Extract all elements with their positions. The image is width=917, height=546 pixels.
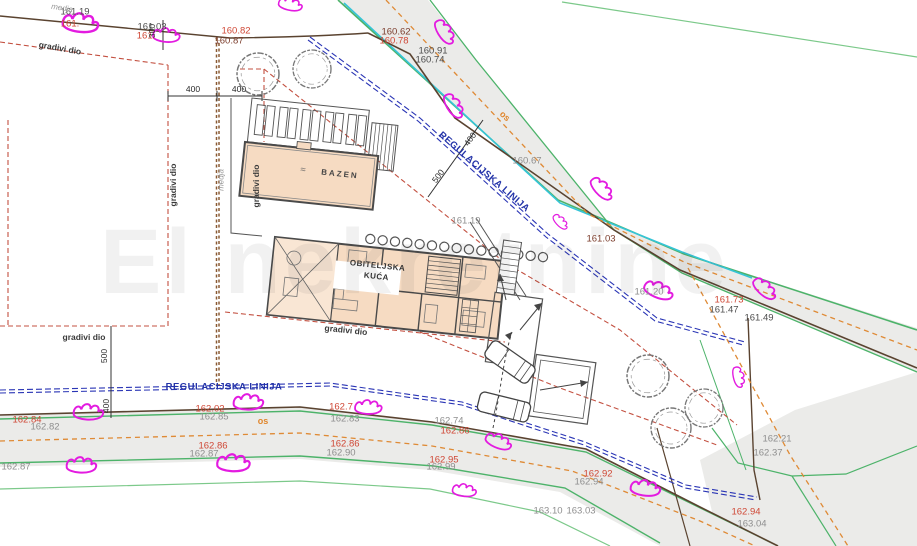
elevation-label: 162.87 <box>189 449 218 460</box>
elevation-label: 161. <box>61 19 80 30</box>
tree <box>627 355 669 397</box>
elevation-label: 162.85 <box>199 412 228 423</box>
buildable-area-label: gradivi dio <box>63 332 106 342</box>
elevation-label: 160.87 <box>214 36 243 47</box>
exterior-stairs <box>496 240 521 295</box>
site-plan-canvas: El nekretnine <box>0 0 917 546</box>
elevation-label: 163.03 <box>566 506 595 517</box>
regulation-line-label: REGULACIJSKA LINIJA <box>166 382 283 393</box>
dimension-label: 400 <box>101 399 111 413</box>
dimension-label: 400 <box>186 84 200 94</box>
elevation-label: 163.10 <box>533 506 562 517</box>
elevation-label: 161.49 <box>744 313 773 324</box>
elevation-label: 162.7 <box>329 402 353 413</box>
elevation-label: 161.20 <box>634 287 663 298</box>
zigzag-boundary-line <box>217 38 220 386</box>
elevation-label: 160.78 <box>379 36 408 47</box>
tree <box>293 50 331 88</box>
elevation-label: 162.94 <box>731 507 760 518</box>
elevation-label: 162.87 <box>1 462 30 473</box>
parking-pad <box>528 354 596 424</box>
elevation-label: 162.90 <box>326 448 355 459</box>
dimension-label: 400 <box>232 84 246 94</box>
elevation-label: 161.19 <box>451 216 480 227</box>
elevation-label: 163.04 <box>737 519 766 530</box>
elevation-label: 161.03 <box>586 234 615 245</box>
buildable-area-label: gradivi dio <box>251 165 261 208</box>
road-axis-label: os <box>258 416 269 426</box>
bottom-road-surface <box>0 406 780 546</box>
elevation-label: 160.67 <box>512 156 541 167</box>
tree <box>685 389 723 427</box>
buildable-area-label: gradivi dio <box>168 164 178 207</box>
elevation-label: 162.37 <box>753 448 782 459</box>
dimension-label: 300 <box>147 24 157 38</box>
elevation-label: 162.86 <box>440 426 469 437</box>
elevation-label: 161.47 <box>709 305 738 316</box>
elevation-label: 160.74 <box>415 55 444 66</box>
north-boundary-line <box>0 16 368 38</box>
elevation-label: 162.83 <box>330 414 359 425</box>
elevation-label: 162.21 <box>762 434 791 445</box>
elevation-label: 162.82 <box>30 422 59 433</box>
boundary-label: medja <box>217 169 226 191</box>
elevation-label: 162.99 <box>426 462 455 473</box>
elevation-label: 162.94 <box>574 477 603 488</box>
dimension-label: 500 <box>99 349 109 363</box>
